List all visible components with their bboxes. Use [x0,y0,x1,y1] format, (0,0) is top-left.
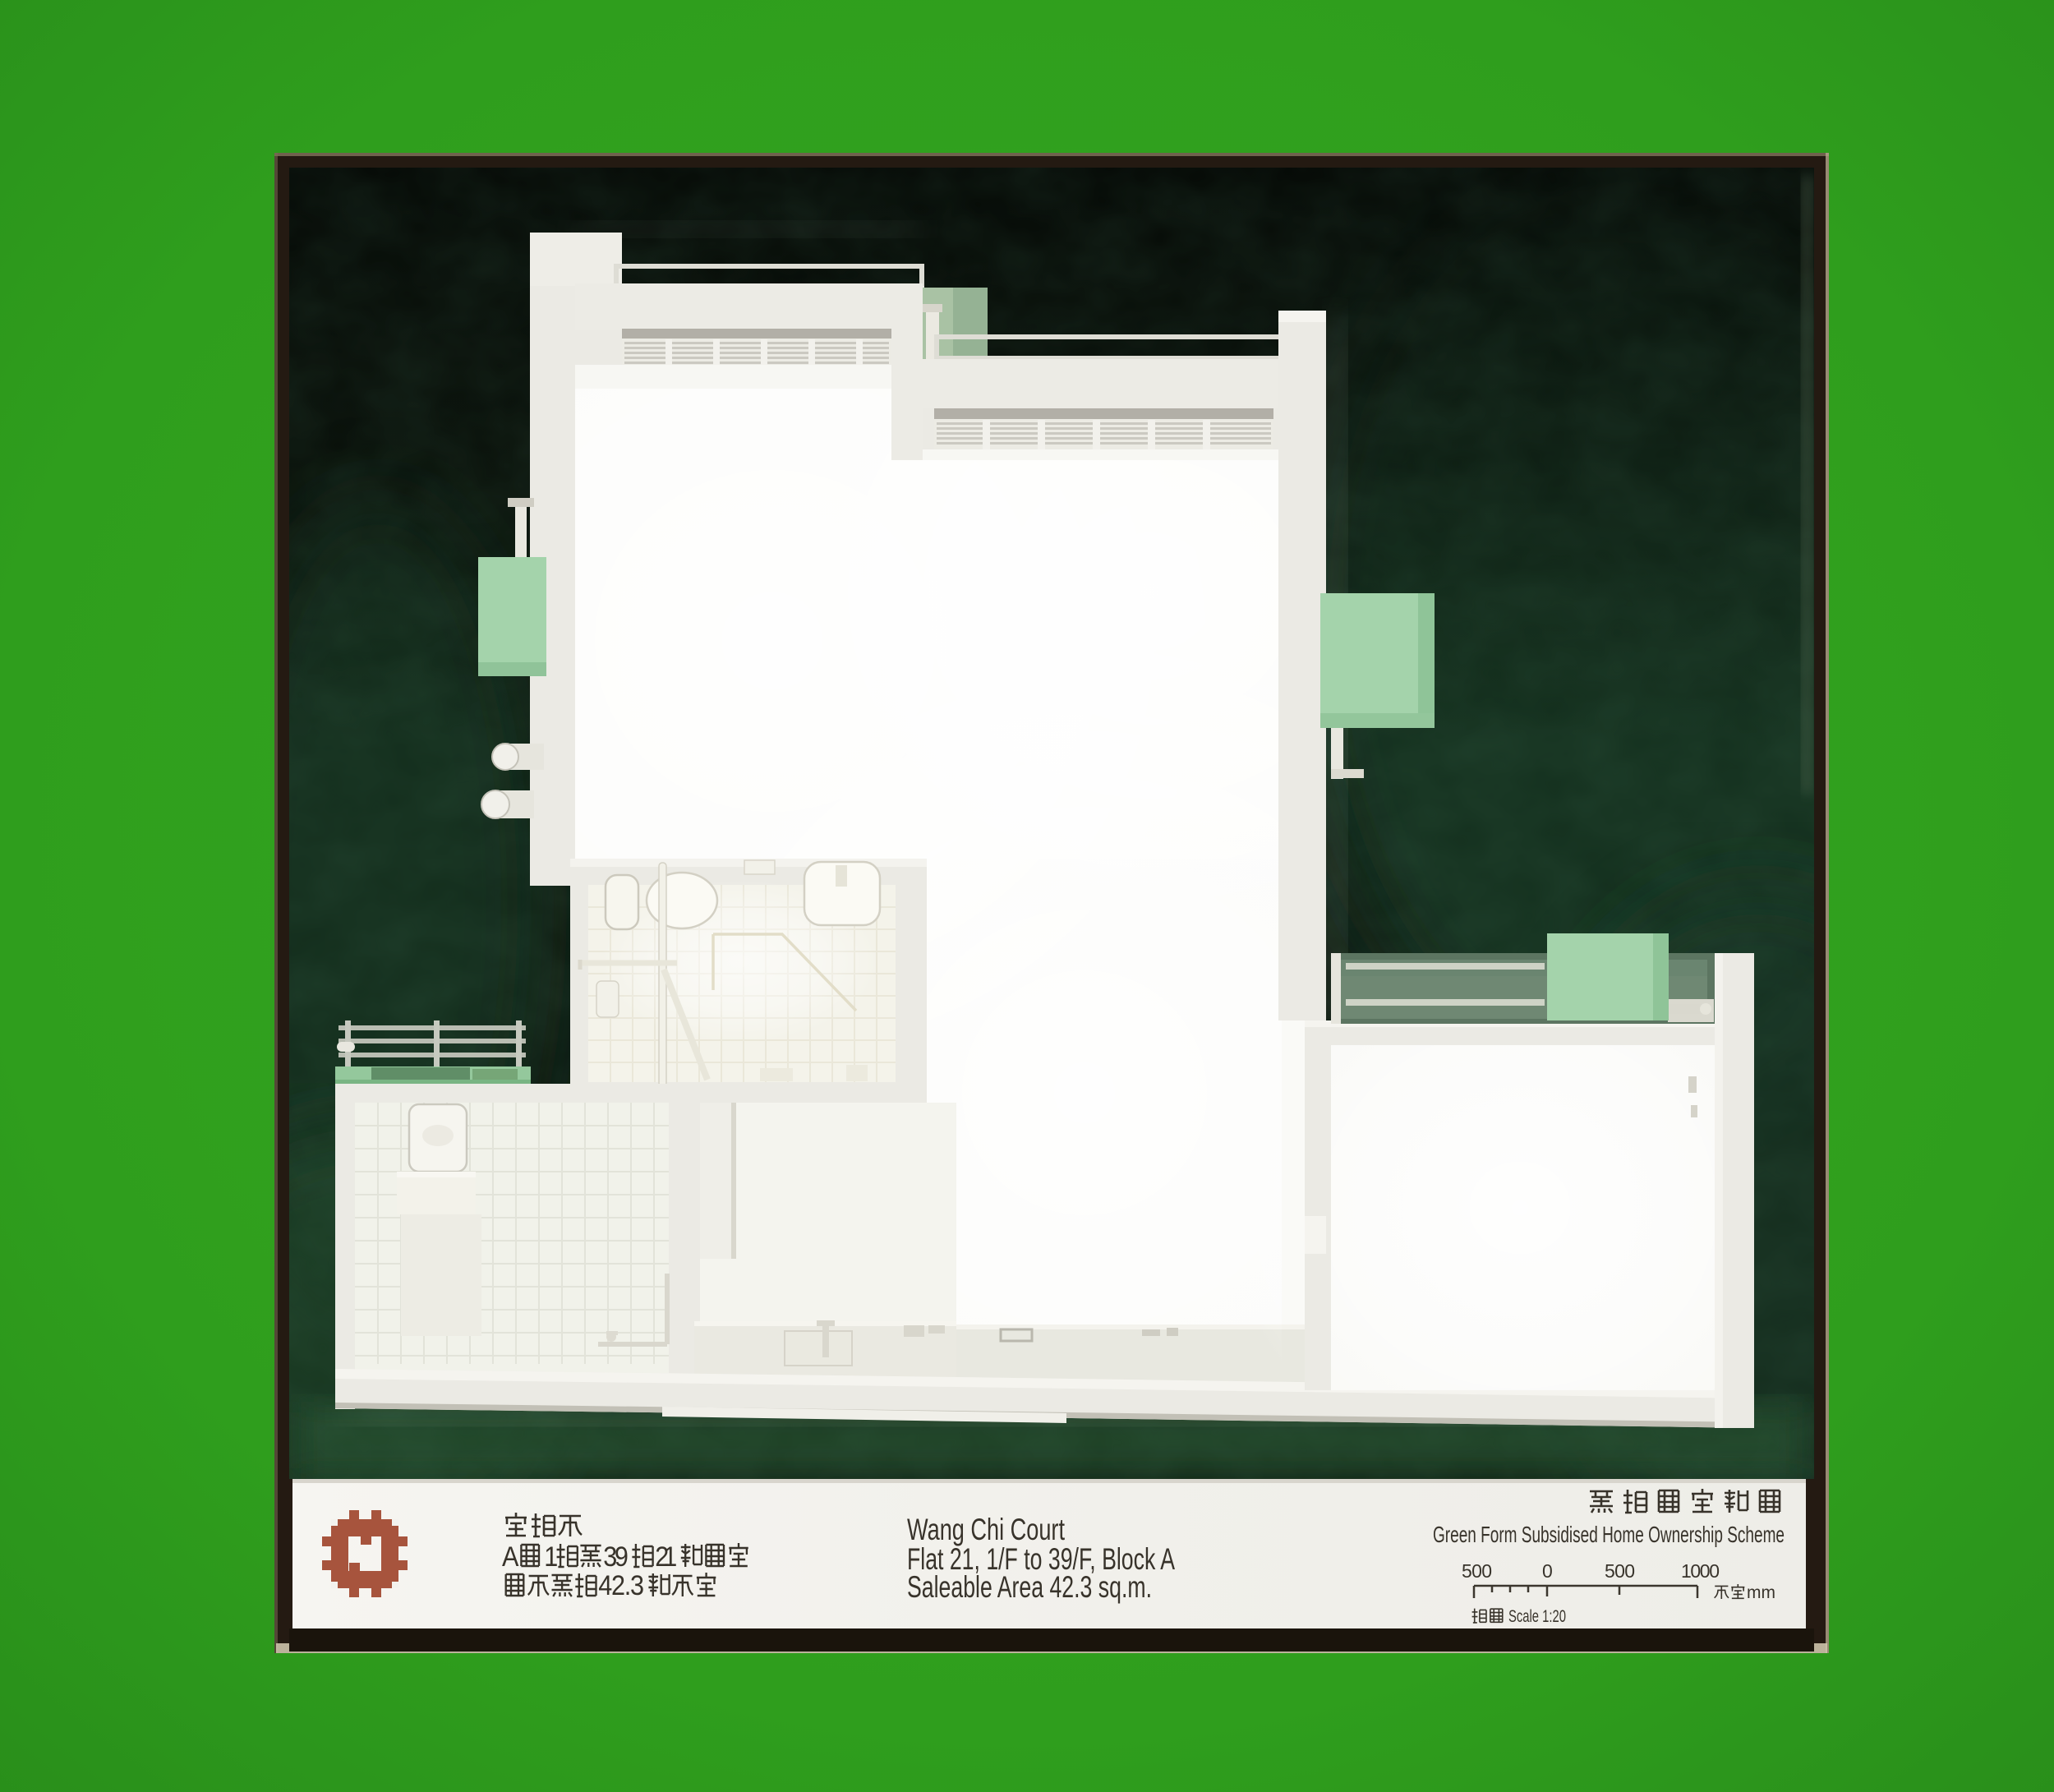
svg-text:0: 0 [1542,1560,1553,1582]
svg-text:21: 21 [655,1541,677,1573]
svg-text:Green Form Subsidised Home Own: Green Form Subsidised Home Ownership Sch… [1433,1522,1785,1547]
svg-text:1000: 1000 [1681,1560,1720,1582]
svg-text:mm: mm [1747,1583,1775,1602]
svg-text:39: 39 [603,1541,629,1573]
svg-text:42.3: 42.3 [598,1570,644,1601]
svg-text:Wang Chi Court: Wang Chi Court [907,1513,1066,1546]
svg-text:Saleable Area 42.3 sq.m.: Saleable Area 42.3 sq.m. [907,1570,1152,1604]
svg-text:1: 1 [544,1541,558,1573]
svg-text:Scale 1:20: Scale 1:20 [1508,1607,1566,1626]
svg-text:500: 500 [1462,1560,1492,1582]
svg-text:A: A [502,1541,519,1573]
svg-text:500: 500 [1605,1560,1635,1582]
